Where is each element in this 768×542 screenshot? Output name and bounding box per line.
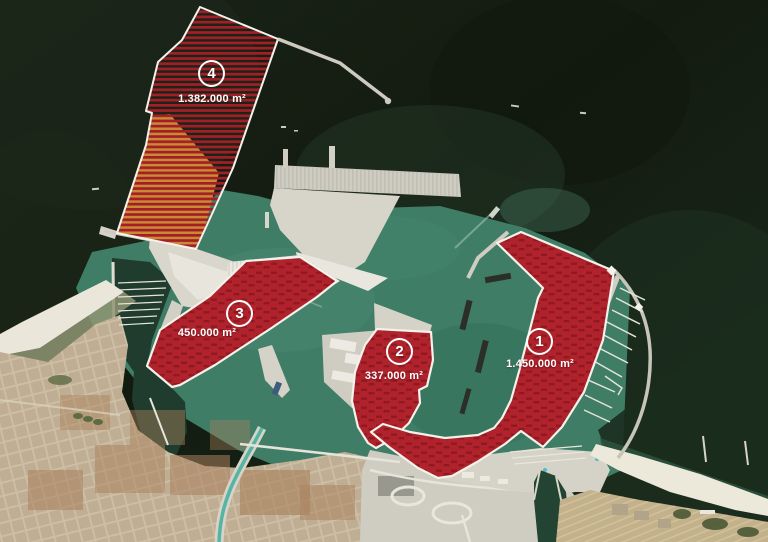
- zone-1-area-label: 1.450.000 m²: [506, 358, 574, 370]
- greenhouse: [700, 510, 715, 514]
- port-satellite-map: 1 1.450.000 m² 2 337.000 m² 3 450.000 m²…: [0, 0, 768, 542]
- satellite-base-art: [0, 0, 768, 542]
- zone-4-area-label: 1.382.000 m²: [178, 93, 246, 105]
- crane-pier: [329, 146, 335, 168]
- zone-4-number-badge: 4: [198, 60, 225, 87]
- zone-2-number-badge: 2: [386, 338, 413, 365]
- zone-1-number-badge: 1: [526, 328, 553, 355]
- zone-3-area-label: 450.000 m²: [178, 327, 236, 339]
- zone-3-number-badge: 3: [226, 300, 253, 327]
- zone-2-area-label: 337.000 m²: [365, 370, 423, 382]
- crane-pier: [283, 149, 288, 168]
